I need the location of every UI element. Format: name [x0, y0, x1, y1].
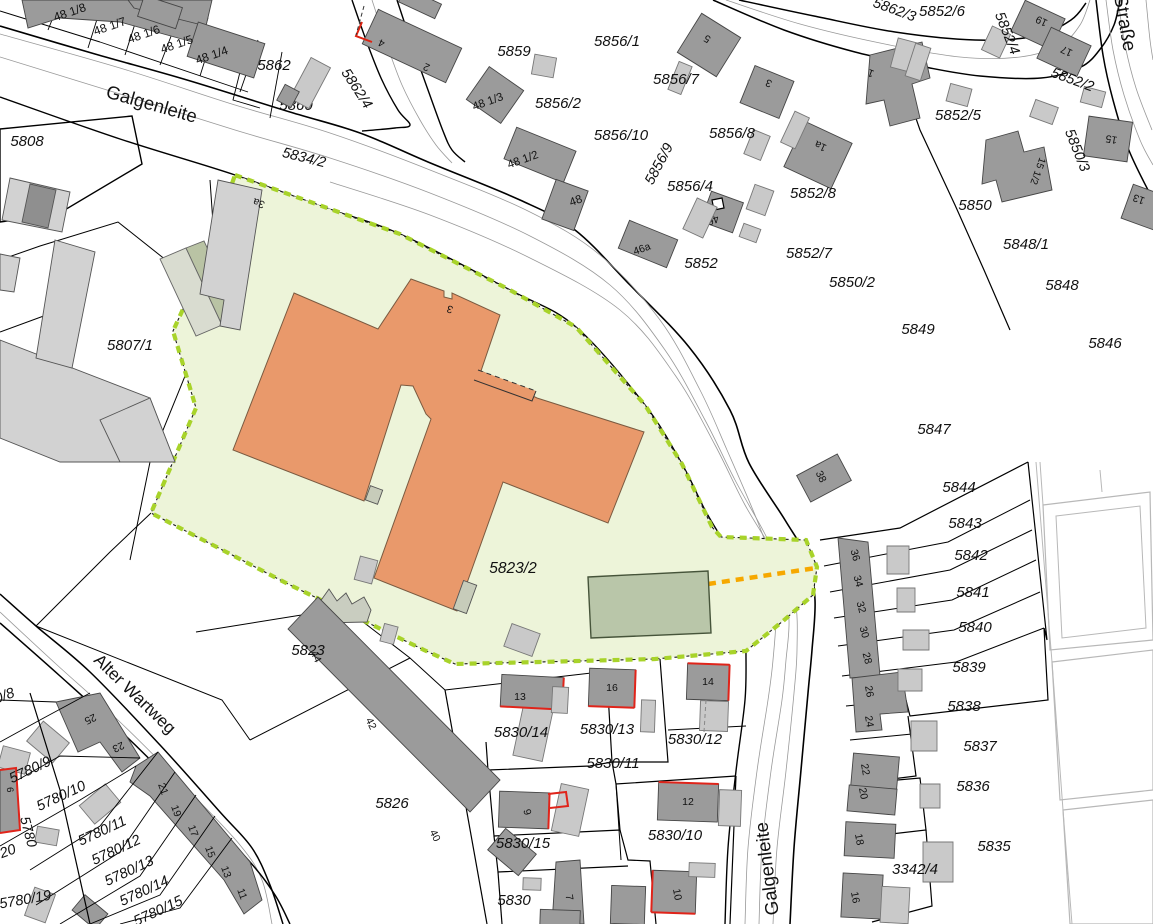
svg-text:5835: 5835 — [977, 838, 1011, 855]
svg-text:6: 6 — [4, 787, 15, 793]
svg-text:5807/1: 5807/1 — [107, 337, 153, 354]
svg-text:5830/13: 5830/13 — [580, 721, 635, 738]
svg-text:5852/6: 5852/6 — [919, 3, 966, 20]
svg-text:13: 13 — [514, 691, 526, 703]
svg-text:16: 16 — [606, 682, 618, 694]
svg-text:26: 26 — [862, 685, 876, 699]
svg-text:5830/11: 5830/11 — [586, 755, 639, 772]
svg-text:5847: 5847 — [917, 421, 951, 438]
svg-text:22: 22 — [858, 763, 872, 777]
svg-text:5859: 5859 — [497, 43, 531, 60]
svg-text:5823: 5823 — [291, 642, 325, 659]
svg-text:5837: 5837 — [963, 738, 997, 755]
svg-text:5844: 5844 — [942, 479, 975, 496]
svg-text:5841: 5841 — [956, 584, 989, 601]
svg-text:15: 15 — [1105, 132, 1119, 146]
svg-text:5856/2: 5856/2 — [535, 95, 582, 112]
svg-text:5839: 5839 — [952, 659, 986, 676]
svg-text:3342/4: 3342/4 — [892, 861, 938, 878]
svg-text:20: 20 — [856, 787, 870, 801]
svg-text:5830/15: 5830/15 — [496, 835, 551, 852]
svg-text:24: 24 — [862, 715, 876, 729]
svg-text:5852/8: 5852/8 — [790, 185, 837, 202]
svg-text:5862: 5862 — [257, 57, 291, 74]
svg-text:5823/2: 5823/2 — [489, 560, 537, 577]
svg-text:5830/10: 5830/10 — [648, 827, 703, 844]
svg-text:5840: 5840 — [958, 619, 992, 636]
svg-text:5850: 5850 — [958, 197, 992, 214]
svg-text:5848/1: 5848/1 — [1003, 236, 1049, 253]
svg-text:5849: 5849 — [901, 321, 935, 338]
svg-text:18: 18 — [852, 833, 866, 847]
svg-text:5852/5: 5852/5 — [935, 107, 982, 124]
svg-text:5838: 5838 — [947, 698, 981, 715]
svg-text:12: 12 — [682, 796, 694, 808]
svg-text:5826: 5826 — [375, 795, 409, 812]
svg-text:5852: 5852 — [684, 255, 718, 272]
svg-text:5842: 5842 — [954, 547, 988, 564]
svg-text:5856/4: 5856/4 — [667, 178, 713, 195]
svg-text:5856/10: 5856/10 — [594, 127, 649, 144]
svg-text:5830/12: 5830/12 — [668, 731, 723, 748]
svg-text:5856/8: 5856/8 — [709, 125, 756, 142]
svg-text:5836: 5836 — [956, 778, 990, 795]
svg-text:5852/7: 5852/7 — [786, 245, 833, 262]
svg-text:5856/1: 5856/1 — [594, 33, 640, 50]
svg-text:10: 10 — [670, 888, 684, 902]
svg-text:5848: 5848 — [1045, 277, 1079, 294]
svg-text:16: 16 — [848, 891, 862, 905]
svg-text:5843: 5843 — [948, 515, 982, 532]
svg-text:5846: 5846 — [1088, 335, 1122, 352]
svg-text:5830/14: 5830/14 — [494, 724, 548, 741]
svg-text:5830: 5830 — [497, 892, 531, 909]
svg-text:5808: 5808 — [10, 133, 44, 150]
svg-text:5850/2: 5850/2 — [829, 274, 876, 291]
svg-text:5856/7: 5856/7 — [653, 71, 700, 88]
svg-text:14: 14 — [702, 676, 714, 688]
